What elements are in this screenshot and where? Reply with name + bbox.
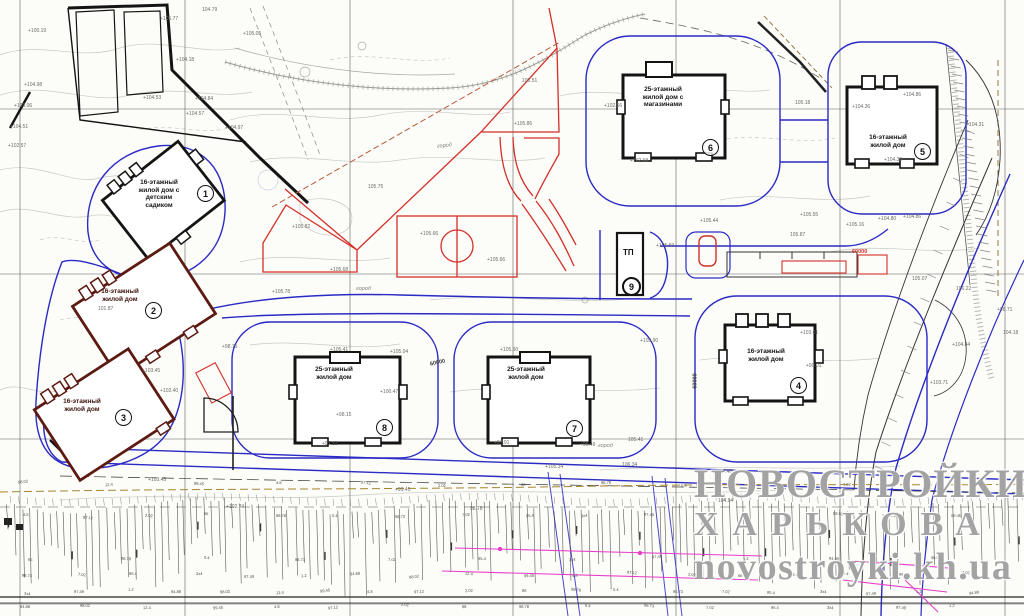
elevation-mark: +103.01 — [800, 330, 818, 336]
elevation-mark: +104.57 — [186, 111, 204, 117]
elevation-mark: +105.78 — [272, 289, 290, 295]
building-4-label: 16-этажный жилой дом — [740, 348, 792, 363]
survey-number: 97.49 — [244, 574, 254, 579]
building-2-outline — [67, 235, 219, 382]
elevation-mark: +103.06 — [14, 103, 32, 109]
elevation-mark: +102.57 — [8, 143, 26, 149]
elevation-mark: +104.80 — [878, 216, 896, 222]
elevation-mark: +98.71 — [997, 307, 1012, 313]
elevation-mark: 106.34 — [622, 462, 637, 468]
elevation-mark: +102.40 — [160, 388, 178, 394]
survey-number: 99.45 — [194, 481, 204, 487]
elevation-mark: +105.41 — [330, 347, 348, 353]
survey-number: 98.78 — [276, 513, 286, 518]
building-9-number: 9 — [622, 277, 641, 296]
elevation-mark: +99.01 — [806, 363, 821, 369]
elevation-mark: +104.31 — [966, 122, 984, 128]
elevation-mark: +105.30 — [500, 347, 518, 353]
survey-number: 97.49 — [644, 512, 654, 518]
building-8-number: 8 — [376, 419, 393, 436]
elevation-mark: 105.41 — [628, 437, 643, 443]
elevation-mark: +104.86 — [903, 214, 921, 220]
building-6-number: 6 — [702, 139, 719, 156]
elevation-mark: +103.45 — [148, 477, 166, 483]
watermark-line-3: novostroyki.kh.ua — [694, 547, 1020, 589]
watermark-line-1: НОВОСТРОЙКИ — [694, 464, 1020, 504]
survey-number: 97.12 — [414, 588, 424, 593]
survey-number: 7.02 — [388, 557, 396, 562]
survey-number: 3x4 — [196, 571, 203, 576]
area-label: город — [598, 443, 613, 449]
tp-substation-label: ТП — [623, 248, 634, 257]
survey-number: 98.02 — [220, 588, 230, 594]
survey-number: 95.4 — [129, 571, 137, 576]
elevation-mark: +105.90 — [640, 338, 658, 344]
elevation-mark: 106.22 — [956, 286, 971, 292]
elevation-mark: 105.07 — [912, 276, 927, 282]
building-3-label: 16-этажный жилой дом — [58, 398, 106, 413]
building-1-number: 1 — [197, 185, 214, 202]
survey-number: 3x4 — [581, 512, 588, 518]
elevation-mark: +104.84 — [195, 96, 213, 102]
elevation-mark: +102.68 — [630, 158, 648, 164]
building-6-label: 25-этажный жилой дом с магазинами — [636, 86, 690, 109]
building-2-number: 2 — [145, 302, 162, 319]
elevation-mark: +105.34 — [545, 464, 563, 470]
survey-number: 96.73 — [295, 557, 305, 562]
elevation-mark: +104.98 — [24, 82, 42, 88]
survey-number: 3x4 — [24, 590, 31, 596]
building-3-number: 3 — [115, 409, 132, 426]
elevation-mark: +105.04 — [390, 349, 408, 355]
survey-number: 0.4 — [204, 555, 210, 561]
survey-number: 97.49 — [896, 605, 906, 611]
elevation-mark: +105.82 — [292, 224, 310, 230]
elevation-mark: +104.53 — [143, 95, 161, 101]
survey-number: 1.2 — [916, 589, 922, 594]
survey-number: 3x4 — [568, 557, 575, 563]
elevation-mark: 104.18 — [1003, 330, 1018, 336]
elevation-mark: +104.86 — [903, 92, 921, 98]
survey-number: 66 — [462, 604, 467, 609]
elevation-mark: +104.18 — [176, 57, 194, 63]
survey-number: 12.4 — [105, 482, 113, 487]
building-5-number: 5 — [914, 143, 931, 160]
survey-number: 3x4 — [820, 588, 827, 593]
survey-number: 1.2 — [128, 587, 134, 592]
site-plan-canvas: 16-этажный жилой дом с детским садиком 1… — [0, 0, 1024, 616]
elevation-mark: +104.39 — [884, 157, 902, 163]
elevation-mark: +105.55 — [800, 212, 818, 218]
building-1-label: 16-этажный жилой дом с детским садиком — [134, 179, 184, 210]
elevation-mark: +105.16 — [846, 222, 864, 228]
survey-number: 0.4 — [681, 483, 687, 488]
elevation-mark: +105.66 — [420, 231, 438, 237]
survey-number: 98.02 — [80, 603, 90, 608]
survey-number: 0.4 — [332, 513, 338, 518]
elevation-mark: +104.51 — [10, 124, 28, 130]
survey-number: 12.4 — [276, 590, 284, 596]
elevation-mark: +105.44 — [700, 218, 718, 224]
elevation-mark: +105.68 — [330, 267, 348, 273]
survey-number: 4.8 — [23, 512, 29, 517]
elevation-mark: +104.84 — [952, 342, 970, 348]
survey-number: 4.8 — [276, 480, 282, 485]
survey-number: 3x4 — [827, 605, 834, 610]
survey-number: 95.4 — [478, 556, 486, 561]
survey-number: 96.73 — [673, 589, 683, 594]
elevation-mark: +105.05 — [243, 31, 261, 37]
elevation-mark: 98.78 — [470, 506, 483, 512]
survey-number: 2.02 — [465, 588, 473, 593]
elevation-mark: +105.59 — [656, 243, 674, 249]
elevation-mark: +98.75 — [222, 344, 237, 350]
survey-number: 4.8 — [366, 588, 372, 593]
building-7-label: 25-этажный жилой дом — [500, 366, 552, 381]
elevation-mark: 105.87 — [790, 232, 805, 238]
dimension-label: 60000 — [852, 249, 867, 255]
elevation-mark: +100.47 — [380, 389, 398, 395]
elevation-mark: +97.91 — [494, 440, 509, 446]
elevation-mark: +105.77 — [160, 16, 178, 22]
elevation-mark: +105.66 — [487, 257, 505, 263]
survey-number: 97.49 — [866, 590, 876, 596]
survey-number: 66 — [521, 482, 526, 487]
survey-number: 97.12 — [83, 514, 93, 520]
survey-number: 7.02 — [461, 512, 469, 518]
survey-number: 96.73 — [395, 514, 405, 519]
building-7-number: 7 — [566, 420, 583, 437]
elevation-mark: +99.45 — [395, 487, 410, 493]
survey-number: 1.2 — [949, 603, 955, 608]
elevation-mark: +102.56 — [604, 103, 622, 109]
survey-number: 1.2 — [301, 573, 307, 578]
elevation-mark: +103.45 — [142, 368, 160, 374]
survey-number: 98.78 — [601, 480, 611, 485]
elevation-mark: +102.74 — [226, 504, 244, 510]
building-8-label: 25-этажный жилой дом — [308, 366, 360, 381]
elevation-mark: +98.15 — [336, 412, 351, 418]
building-5-label: 16-этажный жилой дом — [862, 134, 914, 149]
elevation-mark: 105.51 — [522, 78, 537, 84]
elevation-mark: +104.36 — [852, 104, 870, 110]
watermark-line-2: ХАРЬКОВА — [694, 504, 1020, 547]
elevation-mark: 104.79 — [202, 7, 217, 13]
dimension-label: 60000 — [693, 373, 699, 388]
area-label: город — [356, 286, 371, 292]
elevation-mark: +100.19 — [28, 28, 46, 34]
survey-number: 94.88 — [171, 589, 181, 594]
building-4-number: 4 — [790, 377, 807, 394]
survey-number: 95.4 — [526, 512, 534, 518]
survey-number: 99.45 — [524, 573, 534, 578]
survey-number: 97.49 — [74, 588, 84, 593]
survey-number: 7.02 — [722, 589, 730, 595]
survey-number: 12.4 — [143, 605, 151, 610]
survey-number: 98.78 — [519, 604, 529, 609]
buildings-redbrown — [29, 235, 219, 486]
survey-number: 96.73 — [22, 573, 32, 579]
elevation-mark: +96.49 — [580, 442, 595, 448]
elevation-mark: +105.86 — [514, 121, 532, 127]
survey-number: 66 — [204, 511, 209, 516]
survey-number: 94.88 — [350, 571, 360, 577]
elevation-mark: 105.18 — [795, 100, 810, 106]
elevation-mark: +97.12 — [322, 441, 337, 447]
survey-number: 4.8 — [572, 573, 578, 578]
survey-number: 4.8 — [274, 604, 280, 609]
survey-number: 96.73 — [643, 602, 654, 608]
elevation-mark: +104.97 — [225, 125, 243, 131]
watermark: НОВОСТРОЙКИ ХАРЬКОВА novostroyki.kh.ua — [694, 464, 1020, 588]
survey-number: 7.02 — [706, 605, 714, 610]
survey-number: 94.88 — [20, 604, 30, 609]
survey-number: 2.02 — [145, 512, 153, 517]
elevation-mark: 105.75 — [368, 184, 383, 190]
survey-number: 0.4 — [585, 603, 591, 608]
survey-number: 95.4 — [766, 590, 774, 596]
survey-number: 98.02 — [409, 573, 420, 579]
building-2-label: 16-этажный жилой дом — [96, 288, 144, 303]
survey-number: 7.02 — [77, 572, 85, 578]
survey-number: 98.78 — [121, 556, 131, 562]
elevation-mark: 101.87 — [98, 306, 113, 312]
survey-number: 2.02 — [438, 483, 446, 488]
survey-number: 12.4 — [464, 570, 472, 576]
survey-number: 95.4 — [771, 605, 779, 610]
survey-number: 97.12 — [627, 570, 637, 576]
survey-number: 2.02 — [401, 602, 409, 608]
survey-number: 0.4 — [612, 587, 618, 592]
survey-number: 99.45 — [213, 605, 223, 611]
elevation-mark: +103.71 — [930, 380, 948, 386]
